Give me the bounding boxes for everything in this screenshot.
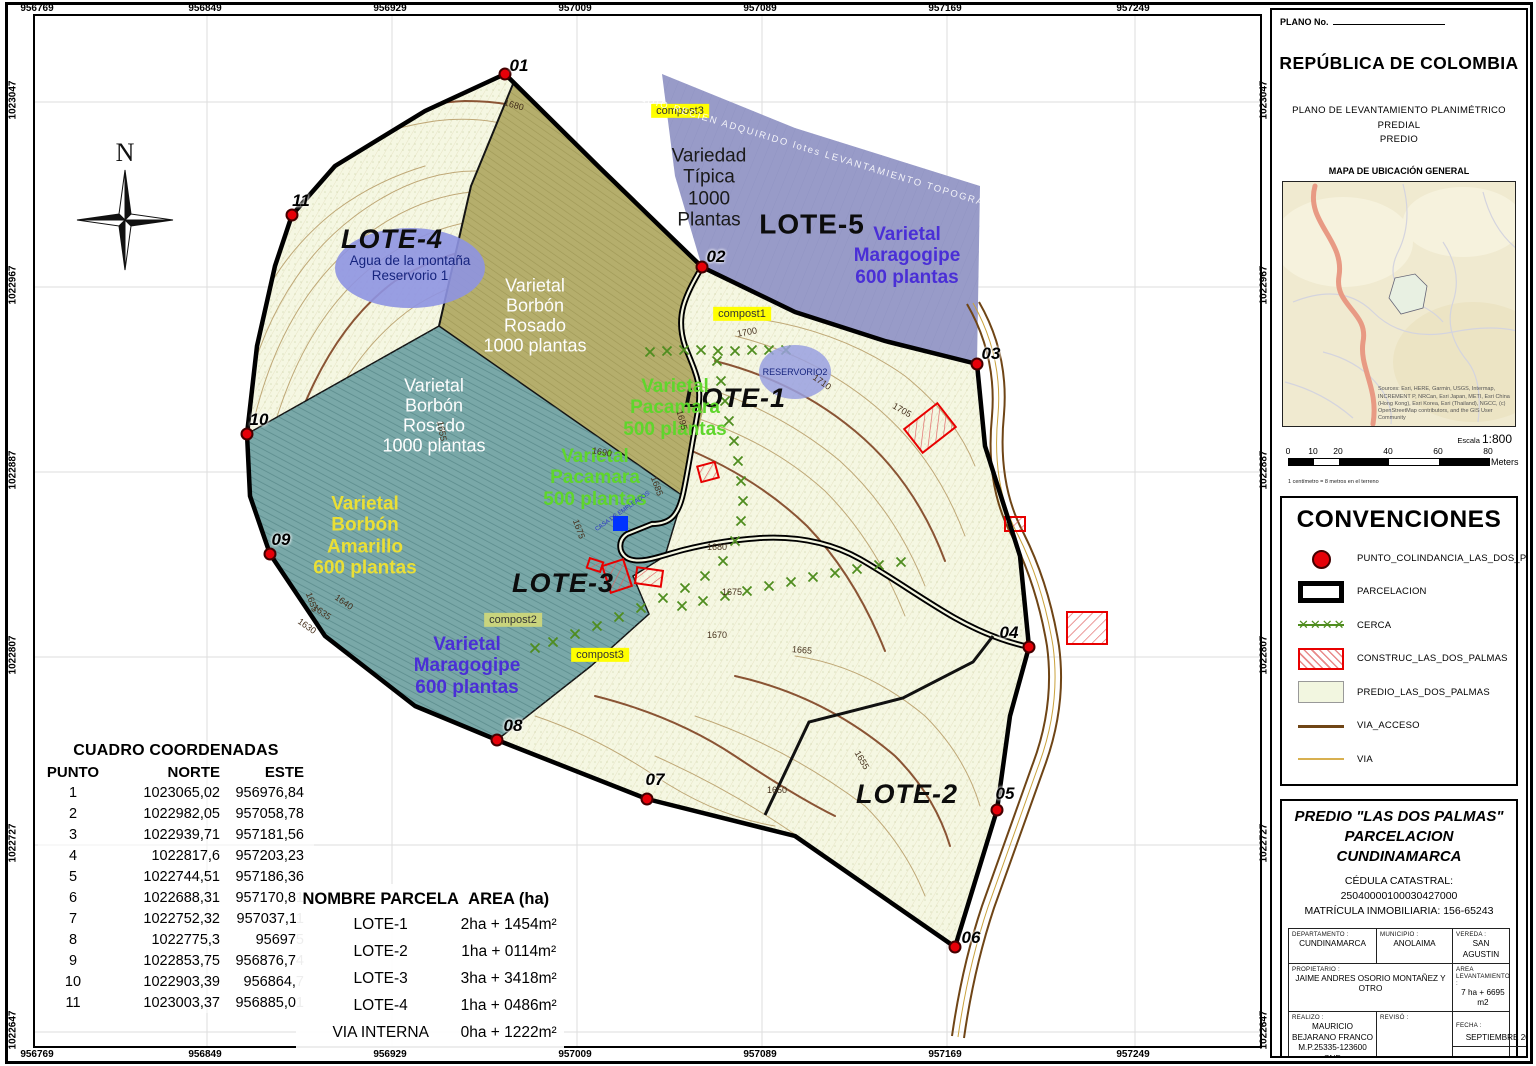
scale-bar: 01020406080 Meters [1288,446,1508,476]
cell-vereda: VEREDA :SAN AGUSTIN [1453,929,1509,962]
legend-label: CERCA [1357,620,1391,631]
property-info-box: PREDIO "LAS DOS PALMAS" PARCELACION CUND… [1280,799,1518,1058]
scale-bar-segments [1288,458,1490,466]
area-cell: VIA INTERNA [302,1019,459,1046]
legend-item-punto: PUNTO_COLINDANCIA_LAS_DOS_PALMAS [1286,547,1512,569]
coord-row: 11023065,02956976,84 [38,782,314,803]
legend-label: VIA [1357,754,1373,765]
coord-cell: 1022752,32 [108,908,234,929]
easting-label: 957169 [928,1049,961,1060]
plan-title: PLANO DE LEVANTAMIENTO PLANIMÉTRICO PRED… [1272,104,1526,148]
inset-credits: Sources: Esri, HERE, Garmin, USGS, Inter… [1378,386,1512,422]
plano-number-label: PLANO No. [1280,17,1329,27]
northing-label: 1022967 [1259,266,1270,305]
property-title: PREDIO "LAS DOS PALMAS" PARCELACION CUND… [1288,807,1510,868]
legend-box: CONVENCIONES PUNTO_COLINDANCIA_LAS_DOS_P… [1280,496,1518,786]
reservorio-2 [759,345,831,399]
legend-item-via-acceso: VIA_ACCESO [1286,715,1512,737]
cell-fecha-archivo: FECHA :SEPTIEMBRE 2020 ARCHIVO :LAS_DOS_… [1453,1012,1528,1058]
cell-departamento: DEPARTAMENTO :CUNDINAMARCA [1289,929,1377,962]
scale-tick: 60 [1433,446,1442,456]
coord-cell: 1022903,39 [108,971,234,992]
coord-cell: 1022817,6 [108,845,234,866]
area-row: LOTE-21ha + 0114m² [302,938,558,965]
legend-label: PREDIO_LAS_DOS_PALMAS [1357,687,1490,698]
coord-cell: 9 [38,950,108,971]
northing-label: 1022807 [1259,636,1270,675]
legend-title: CONVENCIONES [1286,506,1512,534]
coord-cell: 1 [38,782,108,803]
coord-cell: 4 [38,845,108,866]
legend-item-parcelacion: PARCELACION [1286,581,1512,603]
construc-swatch-icon [1298,648,1344,670]
coord-cell: 1022982,05 [108,803,234,824]
reservorio-1 [335,228,485,308]
coord-cell: 957058,78 [234,803,314,824]
scale-tick: 80 [1483,446,1492,456]
via-acceso-swatch-icon [1298,715,1344,737]
casa-square [613,516,628,531]
northing-label: 1022647 [8,1011,19,1050]
area-cell: 2ha + 1454m² [459,911,558,938]
area-cell: LOTE-2 [302,938,459,965]
cerca-swatch-icon [1298,614,1344,636]
area-row: LOTE-41ha + 0486m² [302,992,558,1019]
legend-label: PARCELACION [1357,586,1427,597]
northing-label: 1022647 [1259,1011,1270,1050]
scale-tick: 20 [1333,446,1342,456]
northing-label: 1022887 [1259,451,1270,490]
location-inset-map: Sources: Esri, HERE, Garmin, USGS, Inter… [1282,181,1516,427]
easting-label: 957169 [928,3,961,14]
coord-cell: 1023003,37 [108,992,234,1013]
coord-row: 21022982,05957058,78 [38,803,314,824]
coordinates-table: CUADRO COORDENADAS PUNTO NORTE ESTE 1102… [38,742,314,1013]
area-cell: 0ha + 1222m² [459,1019,558,1046]
coordinates-table-title: CUADRO COORDENADAS [38,742,314,760]
easting-label: 957249 [1116,1049,1149,1060]
legend-item-predio: PREDIO_LAS_DOS_PALMAS [1286,681,1512,703]
coord-cell: 7 [38,908,108,929]
country-title: REPÚBLICA DE COLOMBIA [1272,53,1526,74]
coord-row: 51022744,51957186,36 [38,866,314,887]
coord-cell: 11 [38,992,108,1013]
compass-star-icon [70,168,180,272]
coord-row: 101022903,39956864,7 [38,971,314,992]
punto-swatch-icon [1298,547,1344,569]
predio-swatch-icon [1298,681,1344,703]
coord-row: 91022853,75956876,74 [38,950,314,971]
coord-cell: 957181,56 [234,824,314,845]
legend-item-cerca: CERCA [1286,614,1512,636]
area-cell: LOTE-4 [302,992,459,1019]
easting-label: 956769 [20,3,53,14]
cell-propietario: PROPIETARIO :JAIME ANDRES OSORIO MONTAÑE… [1289,964,1453,1011]
easting-label: 957009 [558,1049,591,1060]
parcelacion-swatch-icon [1298,581,1344,603]
coord-cell: 1022939,71 [108,824,234,845]
coord-cell: 1022688,31 [108,887,234,908]
northing-label: 1023047 [1259,81,1270,120]
coord-cell: 2 [38,803,108,824]
coord-row: 111023003,37956885,01 [38,992,314,1013]
coord-cell: 1022853,75 [108,950,234,971]
easting-label: 956929 [373,3,406,14]
coord-cell: 8 [38,929,108,950]
cell-area: AREA LEVANTAMIENTO :7 ha + 6695 m2 [1453,964,1513,1011]
easting-label: 957009 [558,3,591,14]
info-grid: DEPARTAMENTO :CUNDINAMARCA MUNICIPIO :AN… [1288,928,1510,1058]
coord-cell: 956976,84 [234,782,314,803]
coord-row: 81022775,3956975 [38,929,314,950]
northing-label: 1022807 [8,636,19,675]
easting-label: 957089 [743,1049,776,1060]
north-arrow: N [70,138,180,270]
scale-unit: Meters [1491,457,1519,467]
scale-tick: 10 [1308,446,1317,456]
coord-cell: 10 [38,971,108,992]
legend-label: VIA_ACCESO [1357,720,1420,731]
inset-map-title: MAPA DE UBICACIÓN GENERAL [1272,166,1526,176]
area-row: LOTE-12ha + 1454m² [302,911,558,938]
via-swatch-icon [1298,748,1344,770]
coord-cell: 957203,23 [234,845,314,866]
coord-row: 41022817,6957203,23 [38,845,314,866]
northing-label: 1022727 [8,824,19,863]
area-header-row: NOMBRE PARCELA AREA (ha) [302,888,558,911]
plano-number-blank [1333,16,1445,25]
area-cell: 3ha + 3418m² [459,965,558,992]
area-cell: LOTE-3 [302,965,459,992]
coord-row: 61022688,31957170,81 [38,887,314,908]
area-cell: LOTE-1 [302,911,459,938]
northing-label: 1023047 [8,81,19,120]
easting-label: 956849 [188,3,221,14]
area-row: VIA INTERNA0ha + 1222m² [302,1019,558,1046]
easting-label: 957089 [743,3,776,14]
area-cell: 1ha + 0486m² [459,992,558,1019]
plan-sheet: LOTE-4LOTE-5LOTE-1LOTE-3LOTE-2Variedad T… [0,0,1536,1066]
area-row: LOTE-33ha + 3418m² [302,965,558,992]
cell-reviso: REVISÓ : [1377,1012,1453,1058]
north-label: N [70,138,180,168]
coord-row: 31022939,71957181,56 [38,824,314,845]
coord-cell: 1022775,3 [108,929,234,950]
northing-label: 1022727 [1259,824,1270,863]
easting-label: 957249 [1116,3,1149,14]
title-block-sidebar: PLANO No. REPÚBLICA DE COLOMBIA PLANO DE… [1270,8,1528,1058]
easting-label: 956769 [20,1049,53,1060]
scale-note: 1 centímetro = 8 metros en el terreno [1288,479,1526,485]
legend-item-construc: CONSTRUC_LAS_DOS_PALMAS [1286,648,1512,670]
area-cell: 1ha + 0114m² [459,938,558,965]
coord-cell: 6 [38,887,108,908]
scale-tick: 40 [1383,446,1392,456]
cadastral-ids: CÉDULA CATASTRAL: 25040000100030427000 M… [1288,874,1510,918]
coord-cell: 3 [38,824,108,845]
scale-text: Escala 1:800 [1286,432,1512,446]
cell-municipio: MUNICIPIO :ANOLAIMA [1377,929,1453,962]
easting-label: 956929 [373,1049,406,1060]
legend-label: CONSTRUC_LAS_DOS_PALMAS [1357,653,1508,664]
coord-cell: 1023065,02 [108,782,234,803]
coord-cell: 5 [38,866,108,887]
legend-label: PUNTO_COLINDANCIA_LAS_DOS_PALMAS [1357,553,1528,564]
coord-row: 71022752,32957037,11 [38,908,314,929]
parcel-area-table: NOMBRE PARCELA AREA (ha) LOTE-12ha + 145… [296,884,564,1050]
northing-label: 1022967 [8,266,19,305]
legend-item-via: VIA [1286,748,1512,770]
easting-label: 956849 [188,1049,221,1060]
coord-cell: 1022744,51 [108,866,234,887]
northing-label: 1022887 [8,451,19,490]
plano-number-row: PLANO No. [1272,10,1526,27]
scale-tick: 0 [1286,446,1291,456]
cell-realizo: REALIZO :MAURICIO BEJARANO FRANCO M.P.25… [1289,1012,1377,1058]
coord-header-row: PUNTO NORTE ESTE [38,763,314,782]
